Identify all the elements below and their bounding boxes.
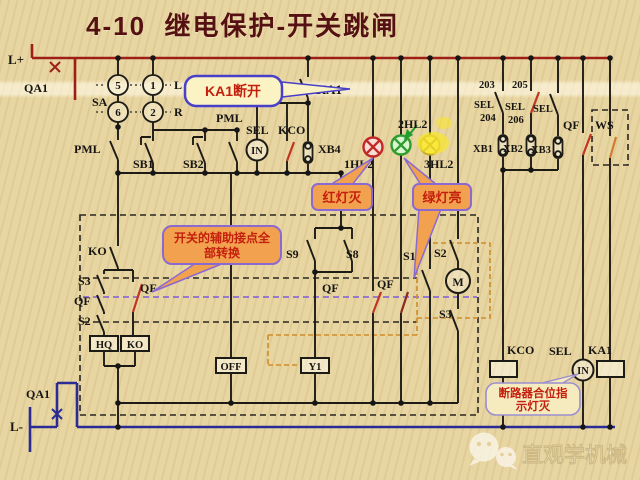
callout-aux-contacts: 开关的辅助接点全 部转换 <box>152 226 281 292</box>
indicator-lamp-green-2hl2 <box>392 136 411 155</box>
label-3hl2: 3HL2 <box>424 157 453 171</box>
label-2hl2: 2HL2 <box>398 117 427 131</box>
wechat-icon <box>469 433 518 471</box>
label-s8: S8 <box>346 247 359 261</box>
label-sb2: SB2 <box>183 157 204 171</box>
label-qa1-bottom: QA1 <box>26 387 50 401</box>
label-pml-left: PML <box>74 142 101 156</box>
label-l-plus: L+ <box>8 52 24 67</box>
callout-breaker-line2: 示灯灭 <box>515 399 551 413</box>
callout-ka1-open-text: KA1断开 <box>205 83 261 99</box>
slide-canvas: 4-10 继电保护-开关跳闸 <box>0 0 640 480</box>
callout-breaker-line1: 断路器合位指 <box>499 386 568 400</box>
label-sa: SA <box>92 95 108 109</box>
label-in-bottom: IN <box>577 366 589 377</box>
label-xb4: XB4 <box>318 142 341 156</box>
label-qf-top: QF <box>563 118 580 132</box>
label-m-motor: M <box>452 275 463 289</box>
label-pml-top: PML <box>216 111 243 125</box>
callout-green-lamp-on-text: 绿灯亮 <box>422 190 461 205</box>
label-sel-c: SEL <box>533 104 553 115</box>
label-s9: S9 <box>286 247 299 261</box>
callout-aux-line1: 开关的辅助接点全 <box>174 230 271 245</box>
label-204: 204 <box>480 113 497 124</box>
sa-position-5: 5 <box>115 80 121 92</box>
label-s2-right: S2 <box>434 246 447 260</box>
label-xb2: XB2 <box>503 144 523 155</box>
label-off-box: OFF <box>221 362 242 373</box>
label-in-top: IN <box>251 146 263 157</box>
label-qf-a: QF <box>322 281 339 295</box>
watermark-text: 直观学机械 <box>522 443 627 467</box>
label-hq-box: HQ <box>96 340 112 351</box>
label-sb1: SB1 <box>133 157 154 171</box>
label-direction-l: L <box>174 78 182 92</box>
label-sel-b: SEL <box>505 102 525 113</box>
motor-linkage-dashed-orange <box>268 243 490 365</box>
label-l-minus: L- <box>10 419 23 434</box>
watermark: 直观学机械 <box>469 433 627 471</box>
label-s2-left: S2 <box>78 314 91 328</box>
label-kco-bottom: KCO <box>507 343 534 357</box>
label-qf-left: QF <box>74 294 91 308</box>
device-boxes <box>90 336 624 377</box>
component-labels: L+ QA1 SA 5 1 6 2 L R PML PML SB1 SB2 SE… <box>8 52 614 434</box>
relay-protection-schematic: L+ QA1 SA 5 1 6 2 L R PML PML SB1 SB2 SE… <box>0 0 640 480</box>
sa-position-2: 2 <box>150 107 156 119</box>
sa-position-1: 1 <box>150 80 156 92</box>
label-203: 203 <box>479 80 495 91</box>
label-ws: WS <box>595 118 614 132</box>
callout-aux-line2: 部转换 <box>204 245 241 260</box>
ka1-coil <box>597 361 624 377</box>
label-sel-a: SEL <box>474 100 494 111</box>
label-qf-b: QF <box>377 277 394 291</box>
sa-position-6: 6 <box>115 107 121 119</box>
qa1-open-mark-top <box>50 62 60 72</box>
indicator-lamp-red-1hl2 <box>364 138 383 157</box>
callout-red-lamp-off: 红灯灭 <box>312 158 373 210</box>
label-s1: S1 <box>403 249 416 263</box>
callout-red-lamp-off-text: 红灯灭 <box>322 190 362 205</box>
label-205: 205 <box>512 80 528 91</box>
callout-breaker-indicator: 断路器合位指 示灯灭 <box>486 374 580 415</box>
label-206: 206 <box>508 115 524 126</box>
label-xb1: XB1 <box>473 144 493 155</box>
label-sel-top: SEL <box>246 123 269 137</box>
label-s3-right: S3 <box>439 307 452 321</box>
label-ko-contact: KO <box>88 244 107 258</box>
callout-ka1-open: KA1断开 <box>185 76 350 106</box>
label-ka1-bottom: KA1 <box>588 343 612 357</box>
label-qa1-top: QA1 <box>24 81 48 95</box>
label-ko-box: KO <box>127 340 143 351</box>
transition-blades-red <box>133 92 616 313</box>
label-kco-top: KCO <box>278 123 305 137</box>
label-xb3: XB3 <box>531 145 551 156</box>
kco-coil <box>490 361 517 377</box>
label-direction-r: R <box>174 105 183 119</box>
label-qf-mid: QF <box>140 281 157 295</box>
label-s3-left: S3 <box>78 274 91 288</box>
label-sel-bottom: SEL <box>549 344 572 358</box>
label-y1-box: Y1 <box>309 362 322 373</box>
